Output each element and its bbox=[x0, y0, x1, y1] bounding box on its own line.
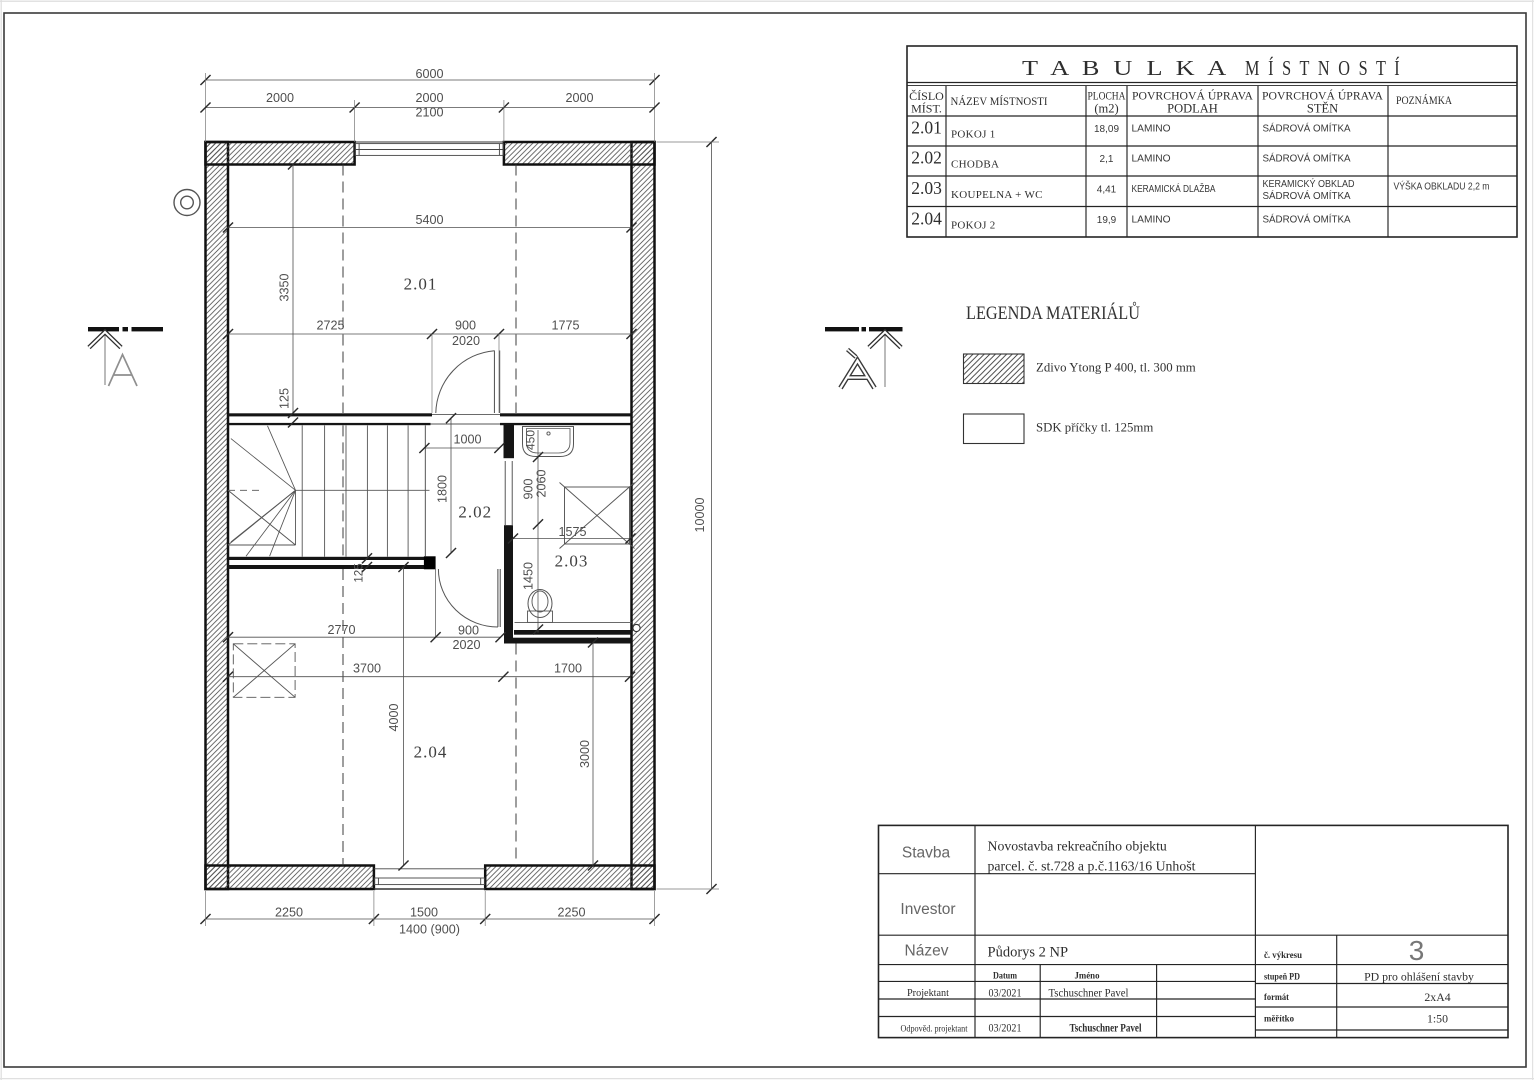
svg-text:POKOJ 1: POKOJ 1 bbox=[951, 129, 996, 141]
svg-text:2.03: 2.03 bbox=[555, 552, 589, 571]
svg-text:KERAMICKÁ DLAŽBA: KERAMICKÁ DLAŽBA bbox=[1132, 182, 1216, 195]
svg-text:2770: 2770 bbox=[327, 623, 355, 637]
svg-text:PLOCHA: PLOCHA bbox=[1088, 89, 1126, 103]
svg-text:formát: formát bbox=[1264, 993, 1290, 1003]
svg-text:2060: 2060 bbox=[535, 469, 549, 497]
svg-text:450: 450 bbox=[524, 430, 538, 450]
svg-text:KOUPELNA + WC: KOUPELNA + WC bbox=[951, 189, 1043, 201]
svg-text:1450: 1450 bbox=[522, 562, 536, 590]
svg-text:1800: 1800 bbox=[436, 475, 450, 503]
svg-text:2020: 2020 bbox=[452, 638, 480, 652]
svg-text:1775: 1775 bbox=[551, 319, 579, 333]
svg-text:3350: 3350 bbox=[278, 273, 292, 301]
svg-text:2100: 2100 bbox=[415, 106, 443, 120]
svg-text:LAMINO: LAMINO bbox=[1132, 124, 1171, 135]
svg-text:1000: 1000 bbox=[453, 433, 481, 447]
svg-text:Půdorys 2 NP: Půdorys 2 NP bbox=[988, 945, 1069, 961]
svg-text:6000: 6000 bbox=[415, 67, 443, 81]
svg-text:2.01: 2.01 bbox=[404, 275, 438, 294]
svg-text:PD pro ohlášení stavby: PD pro ohlášení stavby bbox=[1364, 970, 1474, 984]
svg-text:2725: 2725 bbox=[316, 319, 344, 333]
svg-text:Datum: Datum bbox=[993, 972, 1017, 982]
svg-text:stupeň PD: stupeň PD bbox=[1264, 973, 1300, 983]
svg-text:Název: Název bbox=[905, 943, 949, 960]
svg-text:1400 (900): 1400 (900) bbox=[399, 923, 460, 937]
svg-text:3: 3 bbox=[1409, 935, 1425, 966]
svg-text:Jméno: Jméno bbox=[1075, 972, 1100, 982]
svg-text:CHODBA: CHODBA bbox=[951, 159, 999, 171]
svg-text:SÁDROVÁ OMÍTKA: SÁDROVÁ OMÍTKA bbox=[1263, 189, 1351, 202]
svg-text:19,9: 19,9 bbox=[1097, 215, 1117, 226]
svg-text:3000: 3000 bbox=[578, 740, 592, 768]
svg-text:Zdivo Ytong P 400, tl. 300 mm: Zdivo Ytong P 400, tl. 300 mm bbox=[1036, 361, 1196, 375]
svg-text:M Í S T N O S T Í: M Í S T N O S T Í bbox=[1245, 56, 1402, 80]
svg-text:2xA4: 2xA4 bbox=[1424, 990, 1450, 1004]
svg-text:měřítko: měřítko bbox=[1264, 1015, 1294, 1025]
svg-text:LAMINO: LAMINO bbox=[1132, 154, 1171, 165]
svg-text:LEGENDA MATERIÁLŮ: LEGENDA MATERIÁLŮ bbox=[966, 302, 1140, 324]
svg-text:KERAMICKÝ OBKLAD: KERAMICKÝ OBKLAD bbox=[1263, 177, 1355, 190]
svg-text:SÁDROVÁ OMÍTKA: SÁDROVÁ OMÍTKA bbox=[1263, 152, 1351, 165]
svg-text:2000: 2000 bbox=[415, 91, 443, 105]
svg-text:10000: 10000 bbox=[693, 497, 707, 532]
svg-text:900: 900 bbox=[522, 478, 536, 499]
svg-text:1575: 1575 bbox=[558, 525, 586, 539]
svg-text:SÁDROVÁ OMÍTKA: SÁDROVÁ OMÍTKA bbox=[1263, 212, 1351, 225]
svg-text:2250: 2250 bbox=[275, 906, 303, 920]
svg-text:POVRCHOVÁ ÚPRAVA: POVRCHOVÁ ÚPRAVA bbox=[1262, 89, 1383, 103]
svg-text:Novostavba rekreačního objektu: Novostavba rekreačního objektu bbox=[988, 839, 1167, 854]
svg-text:03/2021: 03/2021 bbox=[989, 988, 1022, 1000]
svg-text:POVRCHOVÁ ÚPRAVA: POVRCHOVÁ ÚPRAVA bbox=[1132, 89, 1253, 103]
svg-text:STĚN: STĚN bbox=[1307, 102, 1338, 116]
svg-text:Investor: Investor bbox=[900, 901, 955, 918]
svg-text:SDK příčky tl. 125mm: SDK příčky tl. 125mm bbox=[1036, 421, 1153, 435]
svg-text:2020: 2020 bbox=[452, 334, 480, 348]
svg-text:Projektant: Projektant bbox=[907, 988, 949, 999]
svg-text:SÁDROVÁ OMÍTKA: SÁDROVÁ OMÍTKA bbox=[1263, 122, 1351, 135]
svg-text:POKOJ 2: POKOJ 2 bbox=[951, 219, 996, 231]
svg-text:2.04: 2.04 bbox=[911, 208, 942, 228]
svg-text:125: 125 bbox=[354, 563, 366, 582]
svg-text:PODLAH: PODLAH bbox=[1167, 102, 1218, 116]
svg-text:900: 900 bbox=[455, 319, 476, 333]
svg-text:2.03: 2.03 bbox=[911, 178, 942, 198]
svg-text:18,09: 18,09 bbox=[1094, 124, 1119, 135]
svg-text:MÍST.: MÍST. bbox=[911, 102, 942, 116]
svg-text:Stavba: Stavba bbox=[902, 845, 951, 862]
svg-text:(m2): (m2) bbox=[1094, 102, 1118, 116]
svg-text:3700: 3700 bbox=[353, 662, 381, 676]
svg-text:NÁZEV MÍSTNOSTI: NÁZEV MÍSTNOSTI bbox=[951, 94, 1048, 108]
svg-text:T A B U L K A: T A B U L K A bbox=[1022, 56, 1230, 80]
svg-text:LAMINO: LAMINO bbox=[1132, 214, 1171, 225]
svg-text:POZNÁMKA: POZNÁMKA bbox=[1396, 93, 1452, 107]
svg-text:2.04: 2.04 bbox=[414, 743, 448, 762]
svg-text:2.01: 2.01 bbox=[911, 118, 942, 138]
svg-text:900: 900 bbox=[458, 624, 479, 638]
svg-text:03/2021: 03/2021 bbox=[989, 1023, 1022, 1035]
svg-text:2,1: 2,1 bbox=[1100, 154, 1114, 165]
svg-text:1700: 1700 bbox=[554, 662, 582, 676]
svg-text:5400: 5400 bbox=[415, 213, 443, 227]
svg-text:parcel. č. st.728 a p.č.1163/1: parcel. č. st.728 a p.č.1163/16 Unhošt bbox=[988, 859, 1196, 874]
svg-text:Tschuschner Pavel: Tschuschner Pavel bbox=[1049, 988, 1129, 1000]
svg-text:2250: 2250 bbox=[557, 906, 585, 920]
svg-text:4,41: 4,41 bbox=[1097, 184, 1117, 195]
svg-text:Tschuschner Pavel: Tschuschner Pavel bbox=[1070, 1023, 1142, 1035]
svg-text:Odpověd. projektant: Odpověd. projektant bbox=[901, 1024, 968, 1035]
svg-text:2000: 2000 bbox=[266, 91, 294, 105]
svg-text:4000: 4000 bbox=[387, 703, 401, 731]
svg-text:VÝŠKA OBKLADU 2,2 m: VÝŠKA OBKLADU 2,2 m bbox=[1394, 179, 1490, 192]
svg-text:125: 125 bbox=[278, 388, 292, 409]
svg-text:2000: 2000 bbox=[565, 91, 593, 105]
svg-text:2.02: 2.02 bbox=[911, 148, 942, 168]
svg-text:1500: 1500 bbox=[410, 906, 438, 920]
svg-text:č. výkresu: č. výkresu bbox=[1264, 951, 1303, 961]
svg-text:2.02: 2.02 bbox=[458, 503, 492, 522]
svg-text:1:50: 1:50 bbox=[1427, 1012, 1448, 1026]
